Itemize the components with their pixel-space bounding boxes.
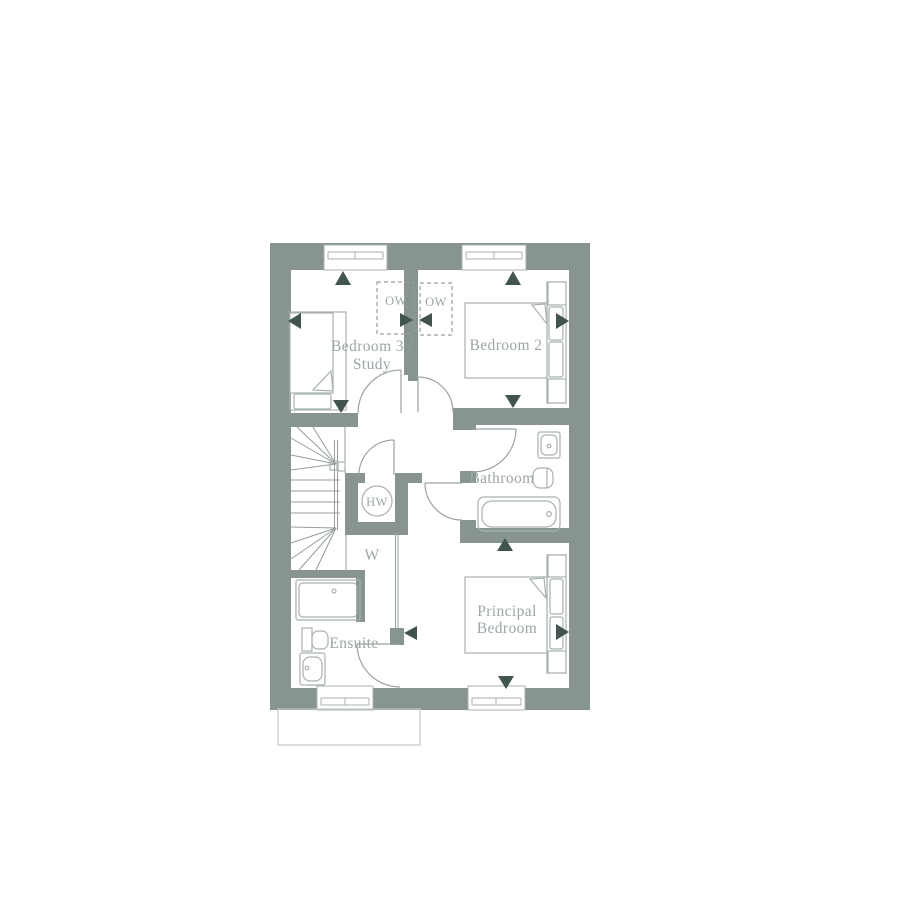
bathroom-bath — [478, 497, 560, 531]
dimension-arrow-up — [505, 271, 521, 285]
wall-right — [569, 243, 590, 710]
label-bedroom3-line1: Bedroom 3 / — [331, 338, 413, 355]
newel-post — [338, 462, 345, 471]
wall-hall-bathroom-upper — [460, 408, 476, 430]
label-bedroom3-line2: Study — [353, 356, 391, 373]
label-hot-water: HW — [366, 495, 388, 509]
window-bedroom2 — [462, 245, 526, 270]
label-ow-right: OW — [425, 295, 447, 309]
wall-bed3-landing — [291, 413, 358, 427]
ensuite-shower — [296, 580, 360, 620]
wall-hw-bottom — [345, 522, 408, 535]
wall-ensuite-door-jamb — [390, 628, 404, 645]
door-hw-cupboard — [359, 440, 394, 475]
ensuite-fixtures — [296, 580, 360, 685]
dimension-arrow-left — [419, 313, 432, 327]
wall-party-doorstop — [408, 375, 418, 381]
wall-bathroom-principal — [460, 528, 569, 543]
dimension-arrow-down — [333, 400, 349, 413]
dimension-arrow-down — [505, 395, 521, 408]
floor-plan: Bedroom 3 / Study Bedroom 2 Bathroom Pri… — [0, 0, 900, 900]
label-ensuite: Ensuite — [329, 635, 378, 652]
door-bedroom3 — [358, 370, 401, 413]
dimension-arrow-left — [404, 626, 417, 640]
wall-hw-top-left — [345, 473, 365, 483]
ensuite-basin — [300, 653, 325, 685]
bathroom-basin — [538, 432, 560, 458]
ground-floor-footprint-outline — [278, 709, 420, 745]
label-bathroom: Bathroom — [469, 470, 534, 487]
floor-plan-canvas: Bedroom 3 / Study Bedroom 2 Bathroom Pri… — [0, 0, 900, 900]
label-principal-line1: Principal — [477, 603, 537, 620]
wall-ensuite-top — [291, 570, 362, 578]
label-ow-left: OW — [385, 294, 407, 308]
window-ensuite — [317, 686, 373, 710]
label-bedroom2: Bedroom 2 — [470, 337, 543, 354]
wall-left — [270, 243, 291, 710]
ensuite-toilet — [302, 628, 328, 651]
wall-top — [270, 243, 590, 270]
wardrobe-partition — [396, 533, 399, 628]
door-bedroom2 — [418, 377, 453, 412]
door-bathroom — [473, 429, 516, 472]
label-wardrobe: W — [364, 547, 379, 564]
window-principal-bedroom — [468, 686, 525, 710]
bathroom-toilet — [533, 468, 553, 488]
window-bedroom3 — [324, 245, 387, 270]
optional-wardrobe-right-box — [420, 283, 452, 335]
staircase — [291, 427, 346, 570]
label-principal-line2: Bedroom — [477, 620, 538, 637]
dimension-arrow-up — [335, 271, 351, 285]
door-principal-bedroom — [425, 483, 462, 520]
